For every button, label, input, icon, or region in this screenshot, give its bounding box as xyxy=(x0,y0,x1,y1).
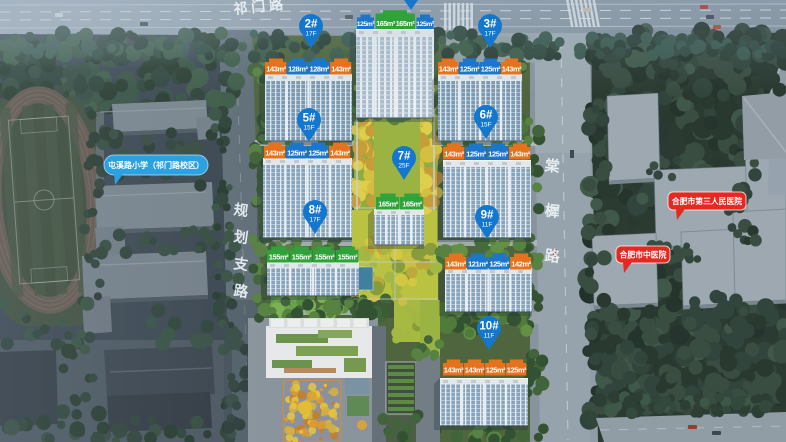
svg-text:3#: 3# xyxy=(484,19,497,31)
svg-text:125m²: 125m² xyxy=(507,365,527,374)
svg-text:2#: 2# xyxy=(305,19,318,31)
svg-text:125m²: 125m² xyxy=(460,64,480,73)
svg-text:125m²: 125m² xyxy=(481,64,501,73)
svg-text:125m²: 125m² xyxy=(489,259,509,268)
svg-text:155m²: 155m² xyxy=(269,252,289,261)
svg-text:128m²: 128m² xyxy=(309,64,329,73)
svg-text:11F: 11F xyxy=(482,222,493,229)
svg-text:143m²: 143m² xyxy=(266,64,286,73)
svg-text:143m²: 143m² xyxy=(444,365,464,374)
svg-text:6#: 6# xyxy=(480,110,493,122)
svg-text:规: 规 xyxy=(233,201,250,220)
svg-text:5#: 5# xyxy=(303,113,316,125)
svg-text:125m²: 125m² xyxy=(416,21,435,28)
svg-text:17F: 17F xyxy=(309,217,320,224)
svg-text:15F: 15F xyxy=(480,122,491,129)
svg-text:165m²: 165m² xyxy=(378,199,398,208)
svg-text:9#: 9# xyxy=(481,210,494,222)
svg-text:165m²: 165m² xyxy=(376,19,396,28)
svg-text:165m²: 165m² xyxy=(402,199,422,208)
svg-text:8#: 8# xyxy=(309,205,322,217)
svg-text:11F: 11F xyxy=(484,333,495,340)
svg-text:143m²: 143m² xyxy=(446,259,466,268)
svg-text:142m²: 142m² xyxy=(511,259,531,268)
svg-text:143m²: 143m² xyxy=(330,148,350,157)
svg-text:143m²: 143m² xyxy=(439,64,459,73)
svg-text:合肥市中医院: 合肥市中医院 xyxy=(619,249,667,259)
svg-text:155m²: 155m² xyxy=(315,252,335,261)
svg-text:143m²: 143m² xyxy=(331,64,351,73)
svg-text:125m²: 125m² xyxy=(357,21,376,28)
svg-text:128m²: 128m² xyxy=(288,64,308,73)
svg-text:路: 路 xyxy=(233,281,250,301)
svg-text:7#: 7# xyxy=(398,151,411,163)
svg-text:支: 支 xyxy=(233,254,250,274)
svg-text:屯溪路小学（祁门路校区）: 屯溪路小学（祁门路校区） xyxy=(108,160,204,170)
svg-text:143m²: 143m² xyxy=(510,149,530,158)
svg-text:125m²: 125m² xyxy=(488,149,508,158)
svg-text:125m²: 125m² xyxy=(308,148,328,157)
svg-text:125m²: 125m² xyxy=(287,148,307,157)
svg-text:125m²: 125m² xyxy=(466,149,486,158)
svg-text:25F: 25F xyxy=(398,163,409,170)
svg-text:合肥市第三人民医院: 合肥市第三人民医院 xyxy=(671,196,742,206)
svg-text:143m²: 143m² xyxy=(502,64,522,73)
svg-text:125m²: 125m² xyxy=(486,365,506,374)
svg-text:165m²: 165m² xyxy=(396,19,416,28)
svg-text:155m²: 155m² xyxy=(292,252,312,261)
svg-text:17F: 17F xyxy=(484,31,495,38)
svg-text:155m²: 155m² xyxy=(338,252,358,261)
svg-text:路: 路 xyxy=(544,246,562,266)
svg-text:143m²: 143m² xyxy=(465,365,485,374)
svg-text:10#: 10# xyxy=(479,321,499,333)
svg-text:樨: 樨 xyxy=(544,201,561,220)
svg-text:17F: 17F xyxy=(305,31,316,38)
svg-text:121m²: 121m² xyxy=(468,259,488,268)
svg-text:143m²: 143m² xyxy=(265,148,285,157)
svg-text:棠: 棠 xyxy=(543,156,562,176)
svg-text:143m²: 143m² xyxy=(444,149,464,158)
svg-text:15F: 15F xyxy=(303,125,314,132)
svg-text:划: 划 xyxy=(233,227,250,247)
